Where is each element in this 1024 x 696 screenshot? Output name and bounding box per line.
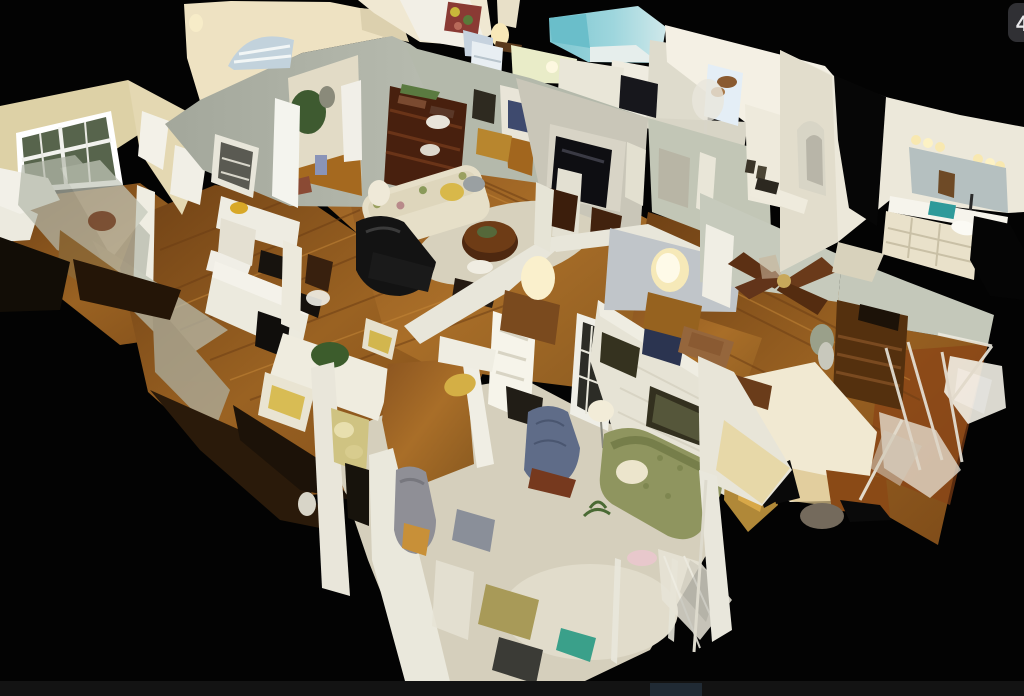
svg-text:4: 4 <box>1016 11 1024 36</box>
